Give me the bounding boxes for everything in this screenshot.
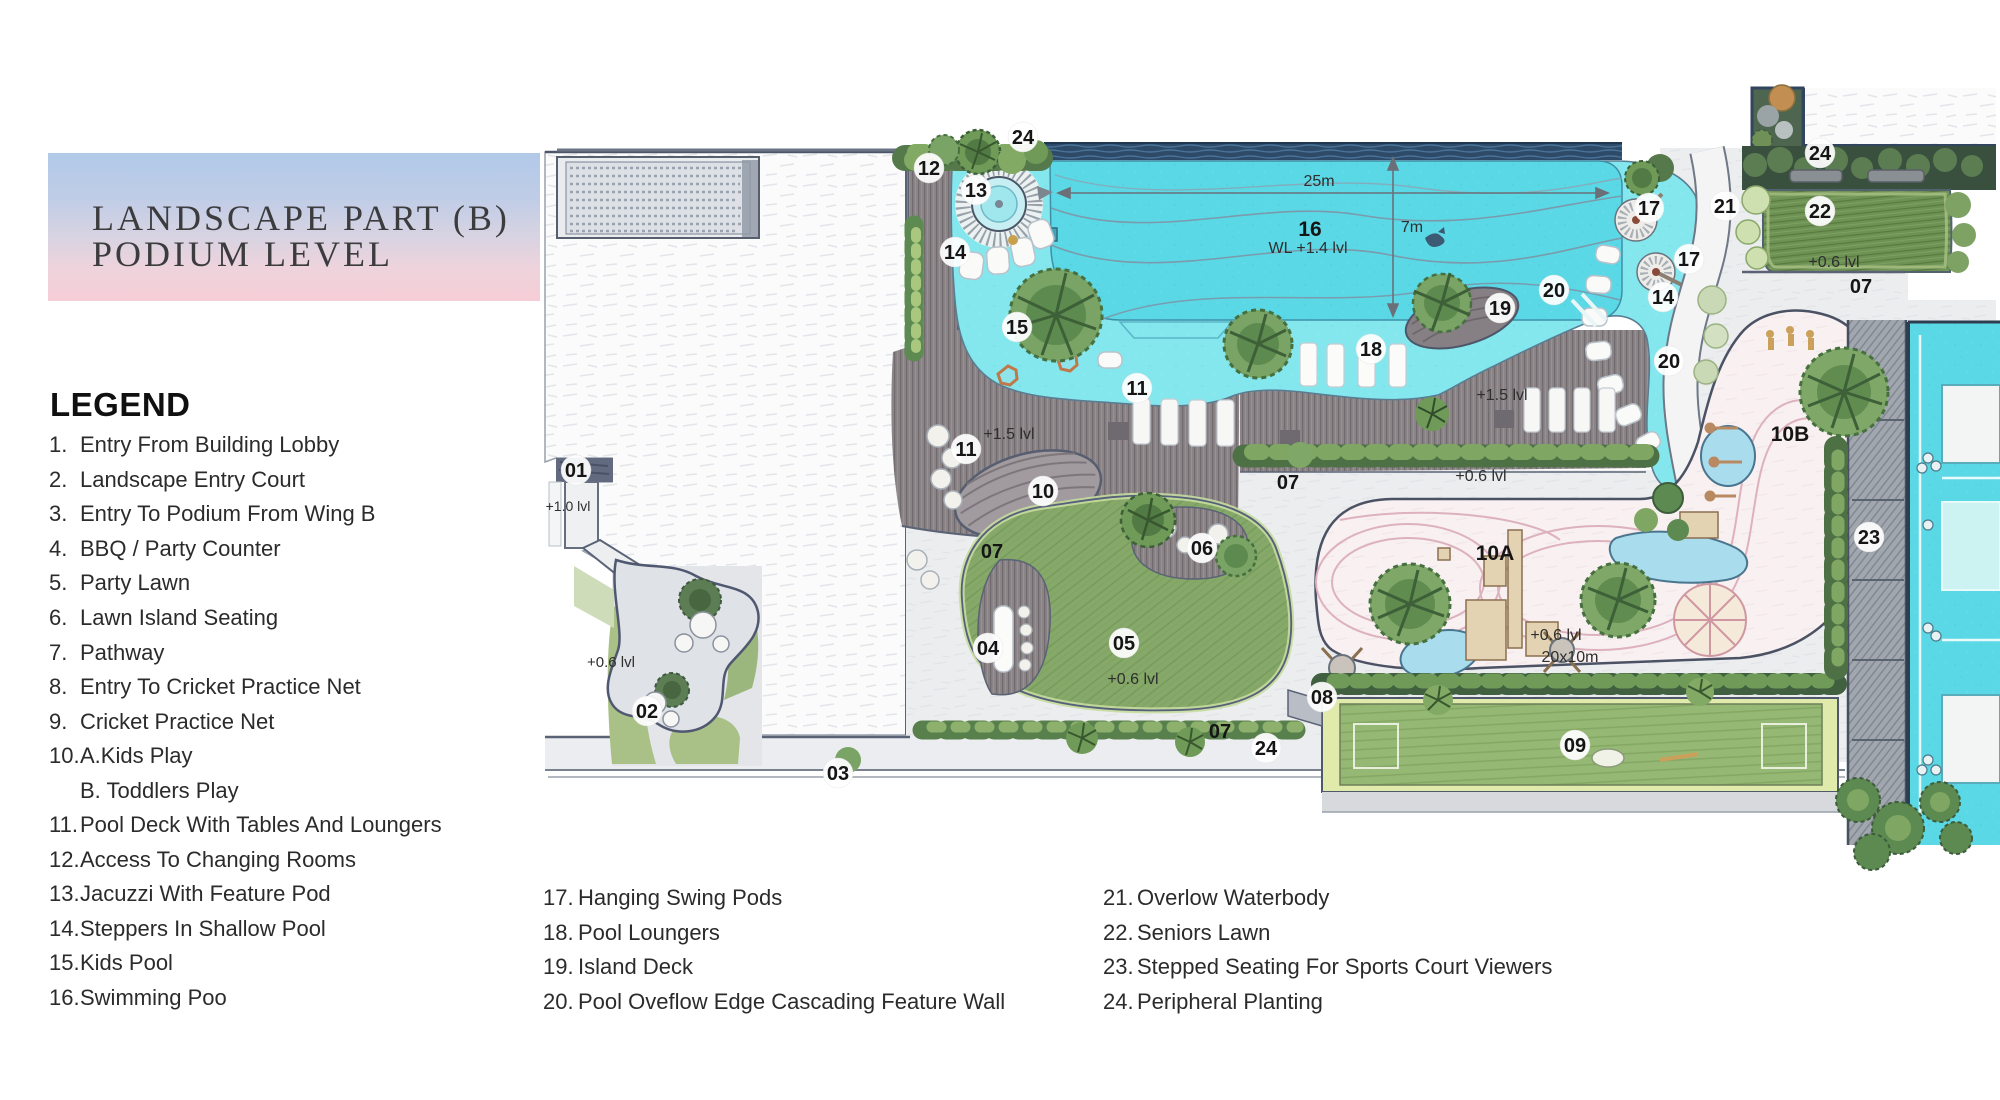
svg-text:20: 20: [1543, 280, 1565, 302]
svg-text:17: 17: [1678, 249, 1700, 271]
svg-text:+1.5 lvl: +1.5 lvl: [1476, 387, 1527, 404]
svg-text:04: 04: [977, 638, 1000, 660]
svg-text:22: 22: [1809, 201, 1831, 223]
svg-text:+1.5 lvl: +1.5 lvl: [983, 426, 1034, 443]
svg-text:10: 10: [1032, 481, 1054, 503]
svg-text:01: 01: [565, 460, 587, 482]
svg-text:18: 18: [1360, 339, 1382, 361]
svg-text:07: 07: [1277, 472, 1299, 494]
svg-text:07: 07: [1850, 276, 1872, 298]
svg-text:+0.6 lvl: +0.6 lvl: [1107, 671, 1158, 688]
svg-text:+1.0 lvl: +1.0 lvl: [546, 498, 591, 514]
svg-text:+0.6 lvl: +0.6 lvl: [1808, 254, 1859, 271]
svg-text:24: 24: [1012, 127, 1035, 149]
svg-text:+0.6 lvl: +0.6 lvl: [587, 654, 635, 671]
svg-text:03: 03: [827, 763, 849, 785]
svg-text:24: 24: [1809, 143, 1832, 165]
svg-text:05: 05: [1113, 633, 1135, 655]
svg-text:11: 11: [1126, 378, 1147, 400]
svg-text:20x10m: 20x10m: [1542, 649, 1599, 666]
svg-text:24: 24: [1255, 738, 1278, 760]
svg-text:23: 23: [1858, 527, 1880, 549]
svg-text:+0.6 lvl: +0.6 lvl: [1530, 627, 1581, 644]
svg-text:09: 09: [1564, 735, 1586, 757]
svg-text:21: 21: [1714, 196, 1736, 218]
svg-text:15: 15: [1006, 317, 1028, 339]
svg-text:WL +1.4 lvl: WL +1.4 lvl: [1269, 240, 1348, 257]
svg-text:12: 12: [918, 158, 940, 180]
svg-text:02: 02: [636, 701, 658, 723]
svg-text:7m: 7m: [1401, 219, 1423, 236]
svg-text:16: 16: [1298, 218, 1321, 241]
svg-text:10B: 10B: [1771, 423, 1810, 446]
svg-text:13: 13: [965, 180, 987, 202]
svg-text:14: 14: [1652, 287, 1675, 309]
svg-text:06: 06: [1191, 538, 1213, 560]
svg-text:17: 17: [1638, 198, 1660, 220]
svg-text:10A: 10A: [1476, 542, 1515, 565]
svg-text:+0.6 lvl: +0.6 lvl: [1455, 468, 1506, 485]
svg-text:11: 11: [955, 439, 976, 461]
svg-text:25m: 25m: [1303, 173, 1334, 190]
svg-text:08: 08: [1311, 687, 1333, 709]
svg-text:19: 19: [1489, 298, 1511, 320]
svg-text:07: 07: [981, 541, 1003, 563]
svg-text:07: 07: [1209, 721, 1231, 743]
svg-text:20: 20: [1658, 351, 1680, 373]
svg-text:14: 14: [944, 242, 967, 264]
